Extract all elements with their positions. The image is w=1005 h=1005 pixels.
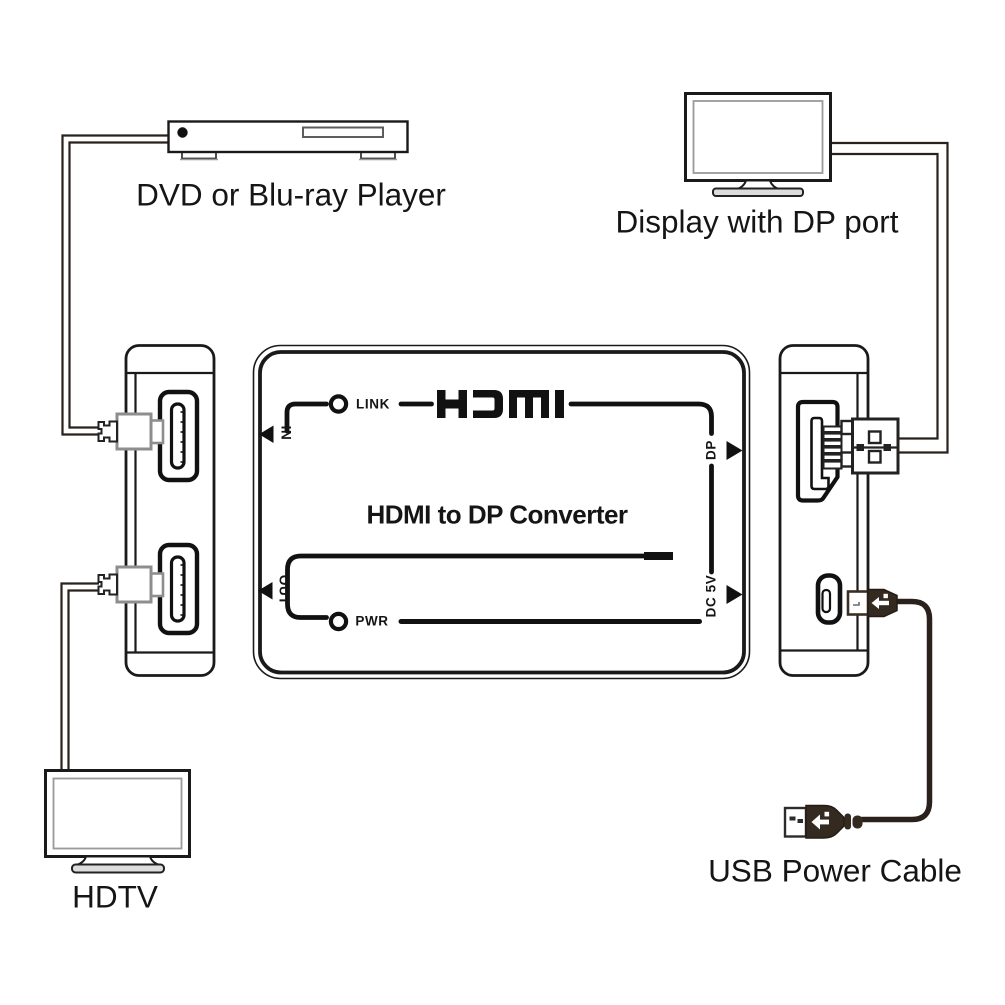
converter-left-panel (99, 346, 215, 676)
hdmi-out-port-icon (160, 545, 197, 633)
link-indicator-label: LINK (356, 397, 390, 412)
pwr-led (331, 614, 346, 629)
out-port-label: OUT (277, 575, 292, 605)
hdtv-monitor (46, 771, 190, 873)
micro-usb-plug (848, 590, 897, 617)
displayport-plug (824, 419, 899, 473)
dvd-power-led (177, 127, 187, 137)
converter-title: HDMI to DP Converter (366, 500, 627, 531)
dc5v-port-label: DC 5V (704, 575, 719, 618)
hdtv-label: HDTV (72, 879, 158, 916)
usb-a-plug (785, 806, 863, 839)
display-label: Display with DP port (615, 204, 898, 241)
dvd-player-label: DVD or Blu-ray Player (136, 177, 446, 214)
hdmi-in-port-icon (160, 392, 197, 480)
hdmi-out-cable (62, 584, 100, 771)
micro-usb-port-icon (818, 576, 840, 623)
display-monitor (686, 94, 831, 197)
hdtv-stand-base (72, 865, 164, 873)
connection-diagram: DVD or Blu-ray Player Display with DP po… (0, 0, 1005, 1005)
display-stand-base (713, 189, 803, 197)
link-led (331, 396, 346, 411)
dvd-disc-tray (303, 128, 383, 138)
usb-power-cable-wire (862, 602, 930, 820)
usb-power-cable-label: USB Power Cable (708, 853, 962, 890)
out-loop-line-end (644, 552, 673, 560)
in-port-label: IN (279, 426, 294, 441)
dp-port-label: DP (704, 440, 719, 460)
display-screen (694, 101, 823, 173)
converter-right-panel (780, 346, 898, 676)
hdmi-in-plug (99, 414, 164, 449)
hdtv-screen (54, 779, 182, 849)
pwr-indicator-label: PWR (355, 614, 388, 629)
dvd-player (169, 122, 408, 160)
hdmi-out-plug (99, 567, 164, 602)
